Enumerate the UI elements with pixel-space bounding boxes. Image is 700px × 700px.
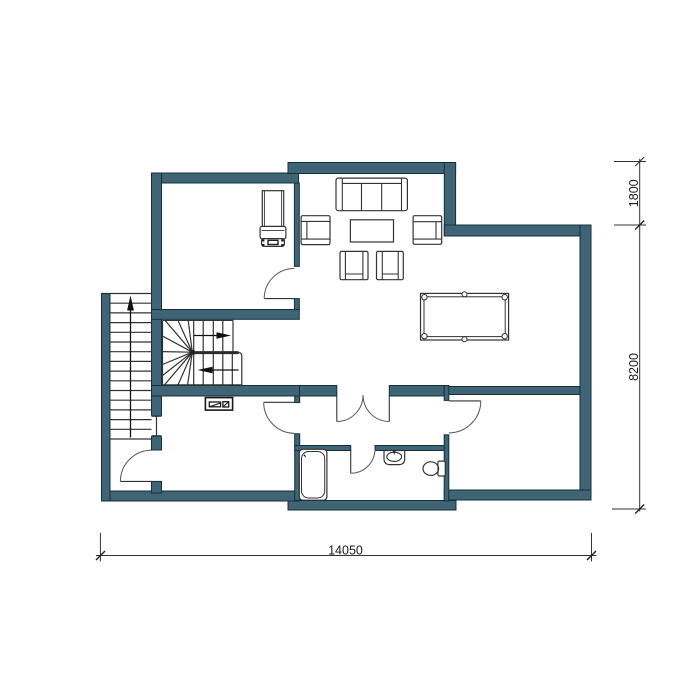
- svg-text:8200: 8200: [627, 353, 641, 381]
- svg-text:14050: 14050: [328, 544, 363, 558]
- svg-text:1800: 1800: [627, 179, 641, 207]
